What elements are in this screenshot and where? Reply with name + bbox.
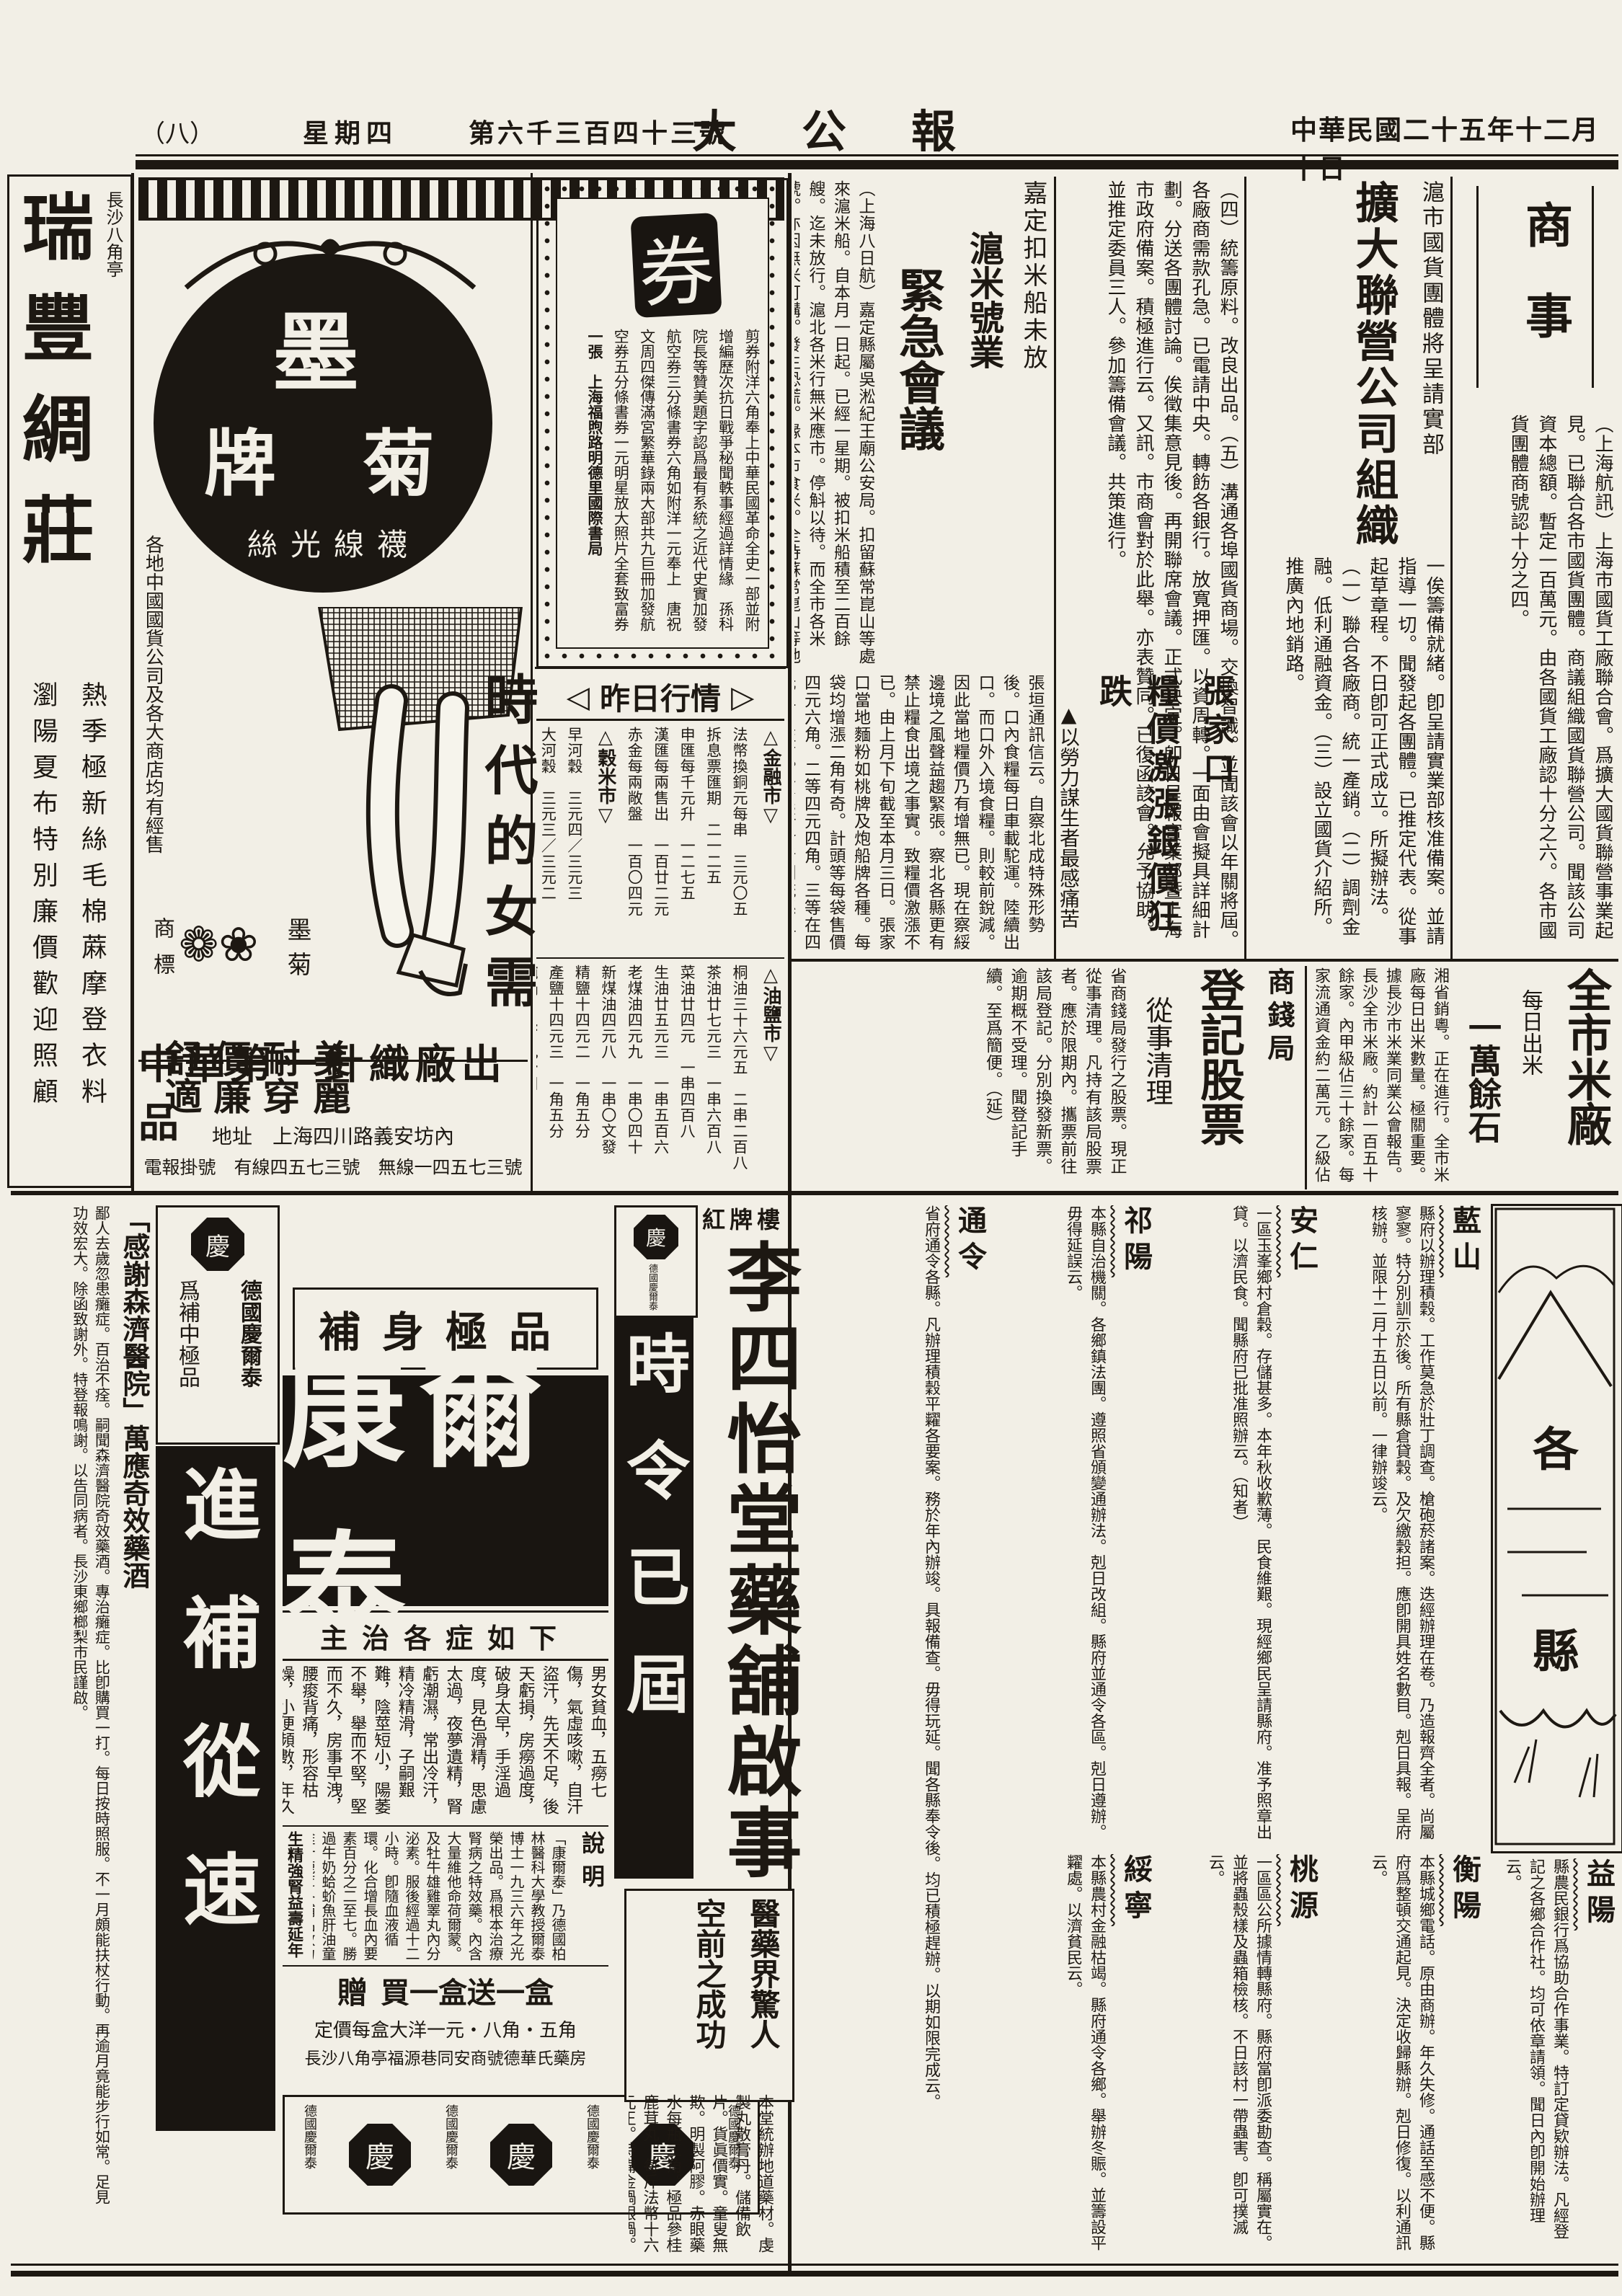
county-lanshan: 藍山 縣府以辦理積穀。工作莫急於壯丁調查。槍砲菸諸案。迭經辦理在卷。乃造報齊全者… bbox=[1328, 1205, 1485, 1845]
market-marker-right: ▷ bbox=[731, 679, 754, 714]
page-number: （八） bbox=[141, 114, 214, 149]
ad-kangertai: 補身極品 康爾泰 主治各症如下 男女貧血，五癆七傷，氣虛咳嗽，自汗盜汗，先天不足… bbox=[283, 1287, 608, 2089]
article-headline-deck1: 滬米號業 bbox=[958, 180, 1009, 665]
market-row: 茶油廿七元三 一串六百八 bbox=[702, 965, 724, 1188]
market-section-label: △金融市▽ bbox=[758, 727, 784, 957]
trademark-name: 墨菊 bbox=[280, 917, 315, 1025]
county-body: 縣農民銀行爲協助合作事業。特訂定貸欵辦法。凡經登記之各鄉合作社。均可依章請領。聞… bbox=[1491, 1858, 1572, 2254]
medallion-circle: 墨 菊 牌 絲光線襪 bbox=[154, 254, 492, 593]
kangertai-note-label: 說明 bbox=[575, 1831, 608, 1965]
weekday: 星期四 bbox=[303, 112, 398, 150]
county-yiyang: 益陽 縣農民銀行爲協助合作事業。特訂定貸欵辦法。凡經登記之各鄉合作社。均可依章請… bbox=[1491, 1858, 1619, 2254]
article-subhead: 一萬餘石 bbox=[1459, 967, 1507, 1184]
strip-brand: 德國慶爾泰 bbox=[441, 2104, 460, 2205]
newspaper-page: （八） 星期四 第六千三百四十三號 大公報 中華民國二十五年十二月十日 長沙八角… bbox=[0, 0, 1622, 2296]
county-body: 一區玉峯鄉村倉穀。存儲甚多。本年秋收歉薄。民食維艱。現經鄉民呈請縣府。准予照章出… bbox=[1162, 1205, 1275, 1845]
kangertai-name: 康爾泰 bbox=[283, 1313, 608, 1668]
chrysanthemum-icon: ❁❀ bbox=[179, 917, 259, 972]
article-deck: 從事清理 bbox=[1138, 967, 1177, 1184]
shiling-banner-text: 時令已屆 bbox=[608, 1331, 700, 1864]
article-deck: ▲以勞力謀生者最感痛苦 bbox=[1054, 674, 1083, 954]
article-zhangjiakou: 張家口 糧價激漲銀價狂跌 ▲以勞力謀生者最感痛苦 張垣通訊信云。自察北成特殊形勢… bbox=[794, 674, 1238, 954]
article-body: 省商錢局發行之股票。現正從事清理。凡持有該局股票者。應於限期內。攜票前往該局登記… bbox=[794, 967, 1129, 1184]
market-row: 桐油三十六元五 二串二百八 bbox=[729, 965, 750, 1188]
success-line2: 空前之成功 bbox=[687, 1898, 731, 2093]
county-body: 本縣農村金融枯竭。縣府通令各鄉。舉辦冬賑。並籌設平糶處。以濟貧民云。 bbox=[996, 1854, 1109, 2254]
market-marker-left: ◁ bbox=[567, 679, 590, 714]
article-jiading: 嘉定扣米船未放 滬米號業 緊急會議 （上海八日航）嘉定縣屬吳淞紀王廟公安局。扣留… bbox=[794, 180, 1051, 665]
county-name: 衡陽 bbox=[1443, 1854, 1485, 2254]
ad-jinbu-banner: 進補從速 bbox=[156, 1446, 275, 2131]
rule-news-mid bbox=[792, 959, 1618, 962]
product-name: 絲光線襪 bbox=[247, 520, 420, 564]
decor-rule bbox=[1476, 186, 1479, 388]
ad-coupon: 券 剪券附洋六角奉上中華民國革命全史一部並附 增編歷次抗日戰爭秘聞軼事經過詳情緣… bbox=[536, 178, 789, 668]
county-body: 一區區公所據情轉縣府。縣府當卽派委勘查。稱屬實在。並將蟲殼樣及蟲箱檢核。不日該村… bbox=[1162, 1854, 1275, 2254]
kangertai-gift-label: 贈 bbox=[337, 1969, 368, 2013]
rule-bottom-heavy bbox=[11, 2271, 1618, 2277]
ad-sellers: 各地中國國貨公司及各大商店均有經售 bbox=[140, 535, 166, 895]
market-row: 產鹽十四元三 一角五分 bbox=[545, 965, 567, 1188]
section-title: 商事 bbox=[1511, 200, 1580, 388]
jinbu-banner-text: 進補從速 bbox=[159, 1464, 272, 2113]
ganxie-title: 「感謝森濟醫院」萬應奇效藥酒 bbox=[118, 1205, 150, 2207]
market-row: 老煤油四元九 一串〇四十 bbox=[624, 965, 645, 1188]
coupon-publisher: 一張 上海福煦路明德里國際書局 bbox=[585, 329, 605, 639]
rule-news-2 bbox=[1244, 177, 1246, 959]
market-title: 昨日行情 bbox=[600, 675, 721, 719]
lisitang-location: 紅牌樓 bbox=[701, 1202, 786, 1234]
market-row: 精鹽十四元二 一角五分 bbox=[571, 965, 593, 1188]
counties-header-char1: 各 bbox=[1533, 1423, 1579, 1477]
county-body: 省府通令各縣。凡辦理積穀平糶各要案。務於年內辦竣。具報備查。毋得玩延。聞各縣奉令… bbox=[794, 1205, 943, 2254]
coupon-line: 增編歷次抗日戰爭秘聞軼事經過詳情緣 孫科 bbox=[715, 329, 735, 639]
article-body: （上海八日航）嘉定縣屬吳淞紀王廟公安局。扣留蘇常崑山等處來滬米船。自本月一日起。… bbox=[794, 180, 877, 665]
market-row: 早河穀 三元四／三元三 bbox=[563, 727, 585, 957]
county-qiyang: 祁陽 本縣自治機關。各鄉鎮法團。遵照省頒變通辦法。剋日改組。縣府並通令各區。剋日… bbox=[996, 1205, 1156, 1845]
kangertai-seller: 長沙八角亭福源巷同安商號德華氏藥房 bbox=[283, 2043, 608, 2070]
market-row: 菜油廿四元 一串四百八 bbox=[676, 965, 698, 1188]
section-shangshi: 商事 bbox=[1455, 179, 1618, 404]
county-suining: 綏寧 本縣農村金融枯竭。縣府通令各鄉。舉辦冬賑。並籌設平糶處。以濟貧民云。 bbox=[996, 1854, 1156, 2254]
market-row: 新煤油四元八 一串〇文發 bbox=[597, 965, 619, 1188]
coupon-line: 空券五分條書券一元明星放大照片全套致富券 bbox=[611, 329, 631, 639]
brand-char-top: 墨 bbox=[272, 283, 359, 408]
market-row: 赤金每兩敞盤 一百〇四元 bbox=[624, 727, 645, 957]
article-body: 張垣通訊信云。自察北成特殊形勢後。口內食糧每日車載駝運。陸續出口。而口外入境食糧… bbox=[794, 674, 1047, 954]
market-row: 生油廿五元三 一串五百六 bbox=[650, 965, 671, 1188]
market-section-label: △穀米市▽ bbox=[593, 727, 619, 957]
county-body: 本縣城鄉電話。原由商辦。年久失修。通話至感不便。縣府爲整頓交通起見。決定收歸縣辦… bbox=[1328, 1854, 1437, 2254]
jinbu-subtitle: 爲補中極品 bbox=[171, 1280, 203, 1431]
ruifeng-line-right: 熱季極新絲毛棉蔴摩登衣料 bbox=[73, 681, 110, 1171]
lisitang-body: 本堂統辦地道藥材。虔製丸散膏丹。儲備飲片。貨眞價實。童叟無欺。明製阿膠。赤眼藥水… bbox=[629, 2094, 776, 2256]
article-headline: 全市米廠 bbox=[1553, 967, 1618, 1184]
rule-page-mid bbox=[11, 1191, 1618, 1195]
county-name: 安仁 bbox=[1280, 1205, 1322, 1845]
county-name: 藍山 bbox=[1443, 1205, 1485, 1845]
article-kicker: 嘉定扣米船未放 bbox=[1016, 180, 1051, 665]
coupon-line: 文周四傑傳滿宮繁華錄兩大部共九巨冊加發航 bbox=[637, 329, 657, 639]
coupon-stamp: 券 bbox=[630, 213, 722, 318]
market-top-half: △金融市▽ 法幣換銅元每串 三元〇五 拆息票匯期 二一二五 申匯每千元升 一二七… bbox=[536, 721, 784, 957]
maker-telegraph: 電報掛號 有線四五七三號 無線一四五七三號 bbox=[138, 1152, 528, 1181]
trademark-label: 商標 bbox=[146, 917, 177, 1032]
article-guohuo-body1: （上海航訊）上海市國貨工廠聯合會。爲擴大國貨聯營事業起見。已聯合各市國貨團體。商… bbox=[1456, 415, 1616, 954]
market-bottom-half: △油鹽市▽ 桐油三十六元五 二串二百八 茶油廿七元三 一串六百八 菜油廿四元 一… bbox=[536, 957, 784, 1188]
county-name: 桃源 bbox=[1280, 1854, 1322, 2254]
ad-jinbu-logo-box: 慶 德國慶爾泰 爲補中極品 bbox=[156, 1205, 280, 1445]
rule-news-1 bbox=[1450, 177, 1453, 959]
ad-shiling-logo: 慶 德國慶爾泰 bbox=[614, 1205, 698, 1318]
maker-name: 中華第一針織廠出品 bbox=[138, 1060, 528, 1120]
masthead-rule-thin bbox=[136, 154, 1618, 156]
county-name: 通令 bbox=[949, 1205, 991, 2254]
ruifeng-location: 長沙八角亭 bbox=[101, 191, 126, 638]
kangertai-note: 「康爾泰」乃德國柏林醫科大學教授爾泰博士一九三六年之光榮出品。爲根本治療腎病之特… bbox=[313, 1831, 568, 1965]
brand-char-right: 菊 bbox=[363, 405, 435, 510]
market-row: 漢匯每兩售出 一百廿二元 bbox=[650, 727, 671, 957]
market-report: ◁ 昨日行情 ▷ △金融市▽ 法幣換銅元每串 三元〇五 拆息票匯期 二一二五 申… bbox=[536, 674, 784, 1187]
kangertai-price: 定價每盒大洋一元・八角・五角 bbox=[283, 2014, 608, 2043]
ruifeng-title: 瑞豐綢莊 bbox=[0, 190, 105, 665]
article-body: 湘省銷粵。正在進行。全市米廠每日出米數量。極關重要。據長沙市米業同業公會報告。長… bbox=[1311, 967, 1452, 1184]
article-kicker: 每日出米 bbox=[1514, 967, 1546, 1184]
article-headline: 登記股票 bbox=[1186, 967, 1251, 1184]
decor-rule bbox=[1592, 186, 1594, 388]
kangertai-offer: 買一盒送一盒 bbox=[381, 1969, 554, 2011]
kangertai-subhead: 主治各症如下 bbox=[283, 1610, 608, 1661]
ad-moju: 墨 菊 牌 絲光線襪 時代的女需 各地中國國貨公司及各大商店均有經售 bbox=[136, 174, 531, 1189]
coupon-line: 院長等贊美題字認爲最有系統之近代史實加發 bbox=[689, 329, 709, 639]
shiling-brand: 德國慶爾泰 bbox=[645, 1264, 659, 1311]
ad-slogan-main: 時代的女需 bbox=[469, 672, 546, 1076]
market-row: 拆息票匯期 二一二五 bbox=[702, 727, 724, 957]
success-box: 醫藥界驚人 空前之成功 bbox=[624, 1889, 794, 2102]
medallion-icon: 慶 bbox=[490, 2124, 552, 2186]
rule-bottom-thin bbox=[11, 2264, 1618, 2266]
success-line1: 醫藥界驚人 bbox=[741, 1898, 785, 2093]
market-row: 法幣換銅元每串 三元〇五 bbox=[729, 727, 750, 957]
county-name: 綏寧 bbox=[1114, 1854, 1156, 2254]
article-guohuo-headline: 滬市國貨團體將呈請實部 擴大聯營公司組織 bbox=[1249, 180, 1448, 549]
ruifeng-line-left: 瀏陽夏布特別廉價歡迎照顧 bbox=[24, 681, 61, 1171]
jinbu-brand: 德國慶爾泰 bbox=[233, 1280, 265, 1431]
article-kicker: 張家口 bbox=[1192, 674, 1238, 954]
ad-ruifeng: 長沙八角亭 瑞豐綢莊 熱季極新絲毛棉蔴摩登衣料 瀏陽夏布特別廉價歡迎照顧 bbox=[7, 174, 133, 1188]
masthead-date: 中華民國二十五年十二月十日 bbox=[1290, 108, 1622, 186]
market-footer-row: 純鍋 五百九十四 bbox=[536, 965, 541, 1188]
article-headline: 擴大聯營公司組織 bbox=[1342, 180, 1405, 549]
county-tongling: 通令 省府通令各縣。凡辦理積穀平糶各要案。務於年內辦竣。具報備查。毋得玩延。聞各… bbox=[794, 1205, 991, 2254]
market-row: 大河穀 三元三／三元二 bbox=[537, 727, 559, 957]
medallion-icon: 慶 bbox=[634, 1215, 678, 1259]
article-guohuo-body2: 一俟籌備就緒。卽呈請實業部核准備案。並請指導一切。聞發起各團體。已推定代表。從事… bbox=[1249, 557, 1448, 954]
lisitang-title: 李四怡堂藥舖啟事 bbox=[704, 1238, 812, 1887]
issue-number: 第六千三百四十三號 bbox=[469, 112, 728, 150]
ad-shiling-banner: 時令已屆 bbox=[614, 1316, 693, 1879]
county-body: 本縣自治機關。各鄉鎮法團。遵照省頒變通辦法。剋日改組。縣府並通令各區。剋日遵辦。… bbox=[996, 1205, 1109, 1845]
county-body: 縣府以辦理積穀。工作莫急於壯丁調查。槍砲菸諸案。迭經辦理在卷。乃造報齊全者。尚屬… bbox=[1328, 1205, 1437, 1845]
coupon-line: 航空券三分條書券六角如附洋一元奉上 唐祝 bbox=[663, 329, 683, 639]
rule-news-4 bbox=[1305, 966, 1307, 1189]
kangertai-symptoms: 男女貧血，五癆七傷，氣虛咳嗽，自汗盜汗，先天不足，後天虧損，房癆過度，破身太早，… bbox=[283, 1665, 608, 1825]
article-kicker: 商錢局 bbox=[1259, 967, 1299, 1184]
article-headline-deck2: 緊急會議 bbox=[885, 180, 951, 665]
coupon-line: 剪券附洋六角奉上中華民國革命全史一部並附 bbox=[742, 329, 762, 639]
article-shangqianju: 商錢局 登記股票 從事清理 省商錢局發行之股票。現正從事清理。凡持有該局股票者。… bbox=[794, 967, 1299, 1184]
coupon-text: 剪券附洋六角奉上中華民國革命全史一部並附 增編歷次抗日戰爭秘聞軼事經過詳情緣 孫… bbox=[563, 329, 762, 639]
county-taoyuan: 桃源 一區區公所據情轉縣府。縣府當卽派委勘查。稱屬實在。並將蟲殼樣及蟲箱檢核。不… bbox=[1162, 1854, 1322, 2254]
counties-header-char2: 縣 bbox=[1533, 1625, 1579, 1679]
article-michang: 全市米廠 每日出米 一萬餘石 湘省銷粵。正在進行。全市米廠每日出米數量。極關重要… bbox=[1311, 967, 1618, 1184]
paper-title: 大公報 bbox=[692, 95, 1021, 160]
strip-brand: 德國慶爾泰 bbox=[300, 2104, 319, 2205]
article-kicker: 滬市國貨團體將呈請實部 bbox=[1415, 180, 1448, 549]
market-section-label: △油鹽市▽ bbox=[758, 965, 784, 1188]
kangertai-claim: 生精強腎益壽延年 bbox=[283, 1831, 306, 1965]
counties-header-illustration: 各 縣 bbox=[1491, 1204, 1622, 1853]
strip-brand: 德國慶爾泰 bbox=[582, 2104, 601, 2205]
county-name: 益陽 bbox=[1577, 1858, 1619, 2254]
medallion-icon: 慶 bbox=[191, 1218, 244, 1271]
ad-ganxie: 「感謝森濟醫院」萬應奇效藥酒 鄙人去歲忽患癱症。百治不痊。嗣聞森濟醫院奇效藥酒。… bbox=[71, 1205, 150, 2207]
kangertai-name-band: 康爾泰 bbox=[283, 1375, 608, 1606]
article-headline: 糧價激漲銀價狂跌 bbox=[1090, 674, 1185, 954]
market-row: 申匯每千元升 一二七五 bbox=[676, 727, 698, 957]
county-anren: 安仁 一區玉峯鄉村倉穀。存儲甚多。本年秋收歉薄。民食維艱。現經鄉民呈請縣府。准予… bbox=[1162, 1205, 1322, 1845]
ganxie-body: 鄙人去歲忽患癱症。百治不痊。嗣聞森濟醫院奇效藥酒。專治癱症。比卽購買一打。每日按… bbox=[71, 1205, 112, 2207]
county-hengyang: 衡陽 本縣城鄉電話。原由商辦。年久失修。通話至感不便。縣府爲整頓交通起見。決定收… bbox=[1328, 1854, 1485, 2254]
maker-address: 地址 上海四川路義安坊內 bbox=[138, 1120, 528, 1151]
medallion-icon: 慶 bbox=[349, 2124, 411, 2186]
masthead-rule-heavy bbox=[136, 160, 1618, 169]
landscape-icon: 各 縣 bbox=[1493, 1206, 1617, 1847]
county-name: 祁陽 bbox=[1114, 1205, 1156, 1845]
brand-char-left: 牌 bbox=[204, 405, 276, 510]
